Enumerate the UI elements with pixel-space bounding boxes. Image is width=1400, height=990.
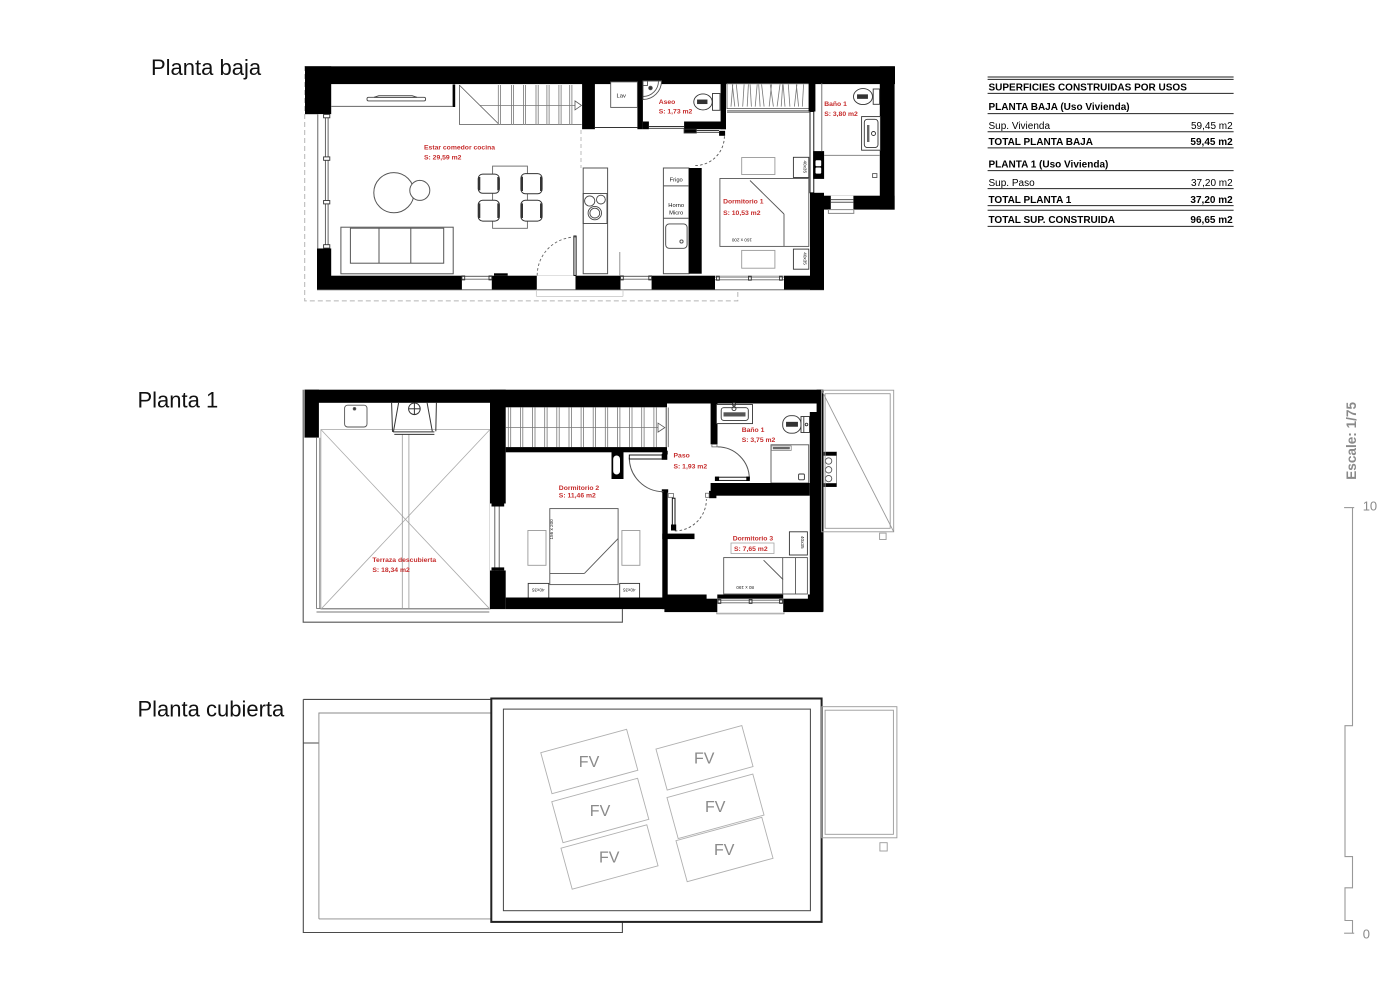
svg-text:Dormitorio 3: Dormitorio 3 [733,536,774,543]
svg-text:S: 29,59 m2: S: 29,59 m2 [424,155,462,162]
svg-text:40x35: 40x35 [803,252,808,265]
svg-text:Frigo: Frigo [670,178,683,184]
svg-text:59,45 m2: 59,45 m2 [1190,137,1233,148]
svg-text:PLANTA 1 (Uso Vivienda): PLANTA 1 (Uso Vivienda) [989,159,1109,170]
svg-text:FV: FV [599,850,620,867]
svg-text:0: 0 [1363,927,1370,942]
svg-text:80 x 190: 80 x 190 [736,585,754,590]
svg-text:S: 7,65 m2: S: 7,65 m2 [734,546,768,553]
svg-text:FV: FV [714,842,735,859]
svg-text:Planta cubierta: Planta cubierta [138,697,286,722]
svg-text:37,20 m2: 37,20 m2 [1190,195,1233,206]
svg-text:59,45 m2: 59,45 m2 [1191,121,1233,132]
svg-text:S: 11,46 m2: S: 11,46 m2 [559,493,596,500]
svg-text:Aseo: Aseo [659,99,676,106]
svg-text:40x35: 40x35 [803,161,808,174]
svg-text:Lav: Lav [617,94,626,100]
svg-text:FV: FV [579,754,600,771]
svg-text:Terraza descubierta: Terraza descubierta [372,557,436,564]
svg-text:Baño 1: Baño 1 [824,101,847,108]
svg-text:S: 3,75 m2: S: 3,75 m2 [742,437,776,444]
svg-text:40x35: 40x35 [532,588,545,593]
svg-text:TOTAL PLANTA BAJA: TOTAL PLANTA BAJA [989,137,1093,148]
svg-text:10: 10 [1363,499,1377,514]
svg-text:Paso: Paso [674,453,690,460]
svg-text:Micro: Micro [669,211,683,217]
svg-text:TOTAL PLANTA 1: TOTAL PLANTA 1 [989,195,1072,206]
svg-text:SUPERFICIES CONSTRUIDAS POR US: SUPERFICIES CONSTRUIDAS POR USOS [989,83,1188,94]
svg-text:FV: FV [590,803,611,820]
svg-text:Horno: Horno [668,203,684,209]
svg-text:FV: FV [694,750,715,767]
svg-text:S: 1,93 m2: S: 1,93 m2 [674,464,708,471]
svg-text:S: 1,73 m2: S: 1,73 m2 [659,109,693,116]
svg-text:Baño 1: Baño 1 [742,427,765,434]
svg-text:PLANTA BAJA (Uso Vivienda): PLANTA BAJA (Uso Vivienda) [989,102,1130,113]
svg-text:Dormitorio 1: Dormitorio 1 [723,199,764,206]
svg-text:40x35: 40x35 [800,536,805,549]
svg-text:TOTAL SUP. CONSTRUIDA: TOTAL SUP. CONSTRUIDA [989,215,1116,226]
svg-text:S: 10,53 m2: S: 10,53 m2 [723,210,761,217]
svg-text:Dormitorio 2: Dormitorio 2 [559,485,600,492]
svg-text:Planta 1: Planta 1 [138,388,219,413]
svg-text:Escale: 1/75: Escale: 1/75 [1344,402,1359,480]
svg-text:160 x 200: 160 x 200 [731,238,752,243]
svg-text:Planta baja: Planta baja [151,55,262,80]
svg-text:Sup. Paso: Sup. Paso [989,178,1036,189]
svg-text:Estar comedor cocina: Estar comedor cocina [424,145,495,152]
svg-text:Sup. Vivienda: Sup. Vivienda [989,121,1051,132]
svg-text:37,20 m2: 37,20 m2 [1191,178,1233,189]
svg-text:156 x 200: 156 x 200 [549,519,554,540]
svg-text:S: 3,80 m2: S: 3,80 m2 [824,111,858,118]
svg-text:40x35: 40x35 [623,588,636,593]
svg-text:96,65 m2: 96,65 m2 [1190,215,1233,226]
svg-text:S: 18,34 m2: S: 18,34 m2 [372,567,410,574]
svg-text:FV: FV [705,799,726,816]
